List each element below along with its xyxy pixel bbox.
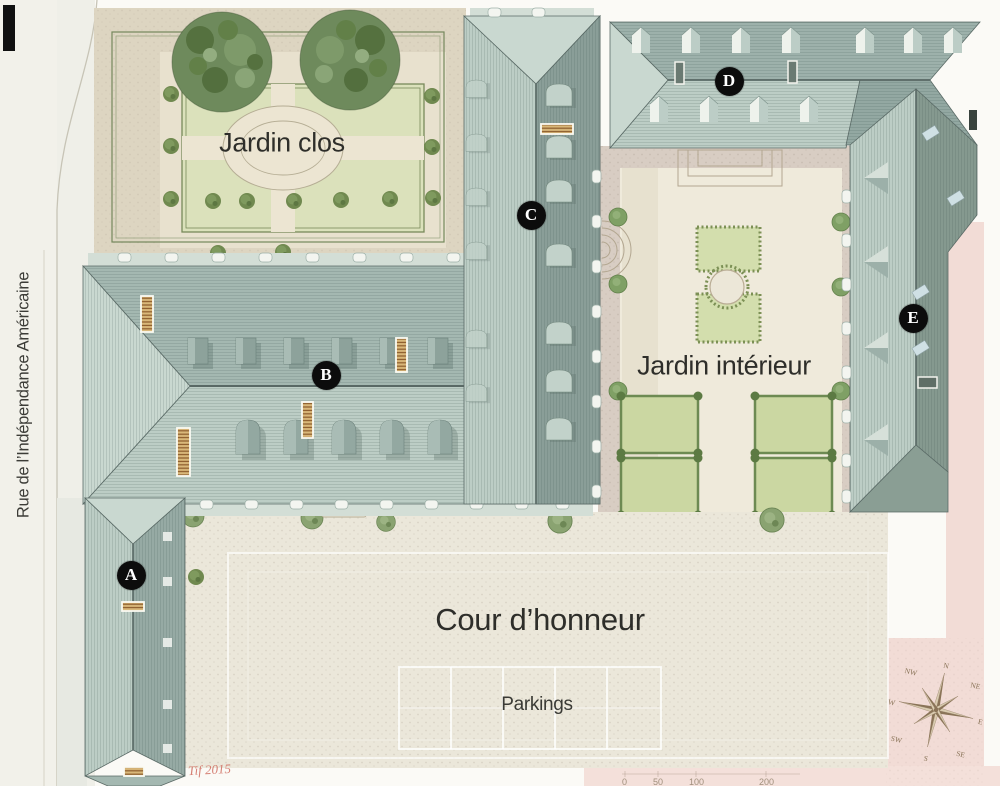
e-edge-chimney: [969, 110, 977, 130]
scale-0: 0: [622, 777, 627, 786]
building-c-roof: [464, 8, 600, 504]
marker-b: B: [312, 361, 341, 390]
marker-a: A: [117, 561, 146, 590]
marker-d: D: [715, 67, 744, 96]
c-chimney: [541, 124, 573, 134]
label-street: Rue de l’Indépendance Américaine: [15, 272, 34, 518]
label-parkings: Parkings: [501, 694, 573, 716]
e-chimney: [918, 377, 937, 388]
site-plan: N NE E SE S SW W NW Jardin clos Jardin i…: [0, 0, 1000, 786]
artist-signature: Tif 2015: [188, 761, 232, 779]
marker-c: C: [517, 201, 546, 230]
plan-artwork: N NE E SE S SW W NW: [0, 0, 1000, 786]
scale-50: 50: [653, 777, 663, 786]
label-jardin-interieur: Jardin intérieur: [637, 351, 811, 382]
corner-mark: [3, 5, 15, 51]
label-cour-honneur: Cour d’honneur: [435, 602, 645, 638]
building-a-roof: [85, 498, 185, 786]
jardin-interieur: [598, 146, 864, 522]
label-jardin-clos: Jardin clos: [219, 128, 345, 159]
marker-e: E: [899, 304, 928, 333]
scale-100: 100: [689, 777, 704, 786]
scale-200: 200: [759, 777, 774, 786]
